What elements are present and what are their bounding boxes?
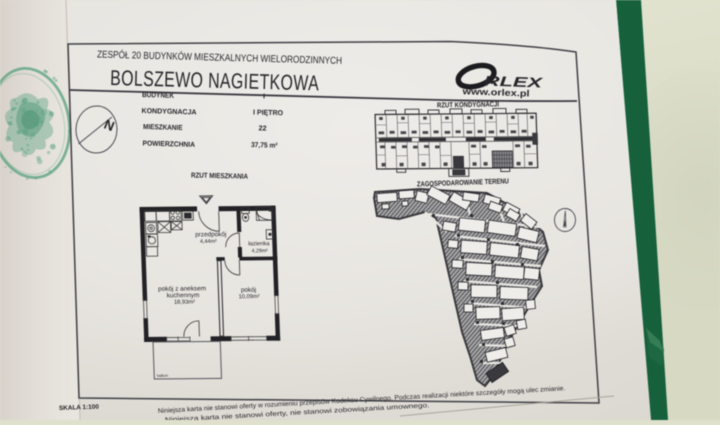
- svg-text:10,09m²: 10,09m²: [238, 294, 260, 300]
- svg-text:18,93m²: 18,93m²: [174, 299, 196, 305]
- svg-text:RZUT KONDYGNACJI: RZUT KONDYGNACJI: [437, 99, 499, 109]
- svg-text:łazienka: łazienka: [248, 241, 270, 247]
- svg-text:balkon: balkon: [157, 374, 168, 378]
- svg-text:POWIERZCHNIA: POWIERZCHNIA: [142, 139, 195, 149]
- svg-text:kuchennym: kuchennym: [167, 292, 200, 299]
- svg-text:SKALA 1:100: SKALA 1:100: [59, 404, 100, 412]
- svg-text:przedpokój: przedpokój: [195, 231, 227, 238]
- svg-text:I: I: [263, 92, 265, 101]
- svg-text:pokój: pokój: [241, 287, 257, 294]
- svg-text:BUDYNEK: BUDYNEK: [142, 90, 175, 100]
- svg-text:RZUT MIESZKANIA: RZUT MIESZKANIA: [191, 171, 248, 181]
- svg-text:22: 22: [258, 123, 266, 132]
- svg-text:4,44m²: 4,44m²: [200, 239, 217, 245]
- svg-text:I PIĘTRO: I PIĘTRO: [253, 108, 284, 118]
- svg-text:4,29m²: 4,29m²: [252, 248, 269, 254]
- svg-text:KONDYGNACJA: KONDYGNACJA: [141, 106, 196, 116]
- svg-text:MIESZKANIE: MIESZKANIE: [143, 122, 183, 132]
- svg-text:37,75 m²: 37,75 m²: [251, 140, 278, 150]
